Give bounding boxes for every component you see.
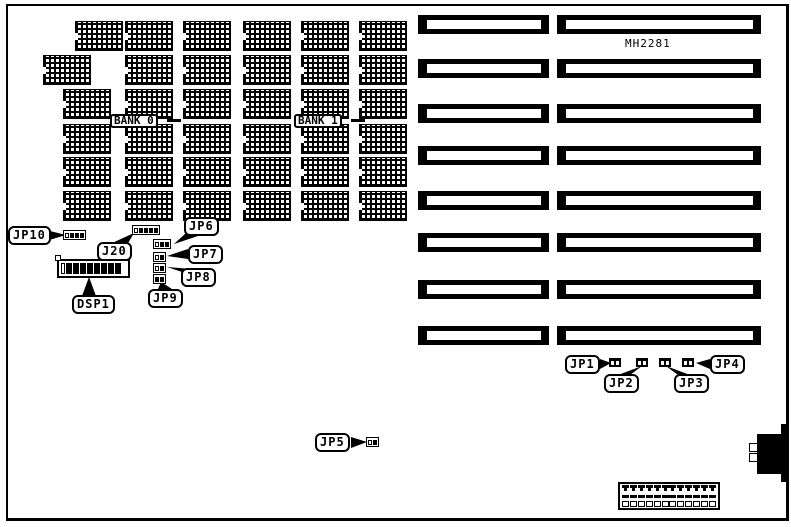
callout-jp6: JP6 <box>184 217 219 236</box>
connector-dash <box>654 495 661 498</box>
external-port-connector <box>757 434 789 474</box>
external-port-step-bottom <box>781 473 789 482</box>
callout-jp1: JP1 <box>565 355 600 374</box>
jumper-jp4 <box>682 358 694 367</box>
connector-pin-row <box>622 485 716 491</box>
connector-socket <box>685 501 692 507</box>
leader-jp5 <box>351 437 367 448</box>
connector-dash <box>662 495 669 498</box>
callout-jp8: JP8 <box>181 268 216 287</box>
callout-jp5: JP5 <box>315 433 350 452</box>
jumper-jp1 <box>609 358 621 367</box>
jumper-jp10 <box>63 230 86 240</box>
leader-dsp1 <box>82 277 96 296</box>
bank-1-label: BANK 1 <box>294 114 342 128</box>
connector-dash <box>646 495 653 498</box>
callout-dsp1: DSP1 <box>72 295 115 314</box>
board-diagram: BANK 0 BANK 1 MH2281 JP10 J20 JP6 JP7 JP… <box>0 0 791 527</box>
connector-pin <box>709 485 716 491</box>
connector-pin <box>638 485 645 491</box>
connector-pin <box>654 485 661 491</box>
connector-pin <box>630 485 637 491</box>
connector-socket <box>669 501 676 507</box>
callout-jp4: JP4 <box>710 355 745 374</box>
connector-dash <box>638 495 645 498</box>
dsp1-chip <box>57 259 130 278</box>
connector-socket <box>677 501 684 507</box>
leader-jp4 <box>696 359 710 369</box>
connector-socket <box>709 501 716 507</box>
connector-pin <box>669 485 676 491</box>
connector-dash <box>685 495 692 498</box>
external-port-tab-1 <box>749 443 758 452</box>
connector-socket <box>630 501 637 507</box>
bank-0-label: BANK 0 <box>110 114 158 128</box>
connector-socket <box>662 501 669 507</box>
connector-pin <box>685 485 692 491</box>
connector-socket <box>638 501 645 507</box>
callout-j20: J20 <box>97 242 132 261</box>
connector-pin <box>646 485 653 491</box>
jumper-j20 <box>132 225 160 235</box>
jumper-jp5 <box>366 437 379 447</box>
jumper-jp6 <box>153 239 171 249</box>
callout-jp7: JP7 <box>188 245 223 264</box>
connector-pin <box>677 485 684 491</box>
connector-dash <box>709 495 716 498</box>
connector-dash <box>701 495 708 498</box>
jumper-jp9 <box>153 274 166 284</box>
connector-pin <box>693 485 700 491</box>
connector-pin <box>622 485 629 491</box>
callout-jp10: JP10 <box>8 226 51 245</box>
connector-pin <box>662 485 669 491</box>
connector-socket-row <box>622 501 716 507</box>
bank1-lead-line <box>351 119 365 122</box>
connector-socket <box>654 501 661 507</box>
connector-dash <box>622 495 629 498</box>
connector-dash <box>693 495 700 498</box>
connector-dash <box>630 495 637 498</box>
jumper-jp3 <box>659 358 671 367</box>
jumper-jp8 <box>153 263 166 273</box>
leader-jp7 <box>167 249 188 259</box>
jumper-jp7 <box>153 252 166 262</box>
jumper-jp2 <box>636 358 648 367</box>
bottom-pin-connector <box>618 482 720 510</box>
external-port-tab-2 <box>749 453 758 462</box>
connector-socket <box>622 501 629 507</box>
dsp1-notch <box>55 255 61 261</box>
callout-jp2: JP2 <box>604 374 639 393</box>
connector-dash <box>669 495 676 498</box>
callout-jp9: JP9 <box>148 289 183 308</box>
connector-dash-row <box>622 495 716 498</box>
bank0-lead-line <box>167 119 181 122</box>
connector-socket <box>701 501 708 507</box>
callout-jp3: JP3 <box>674 374 709 393</box>
connector-dash <box>677 495 684 498</box>
connector-socket <box>646 501 653 507</box>
connector-socket <box>693 501 700 507</box>
external-port-step-top <box>781 424 789 435</box>
connector-pin <box>701 485 708 491</box>
